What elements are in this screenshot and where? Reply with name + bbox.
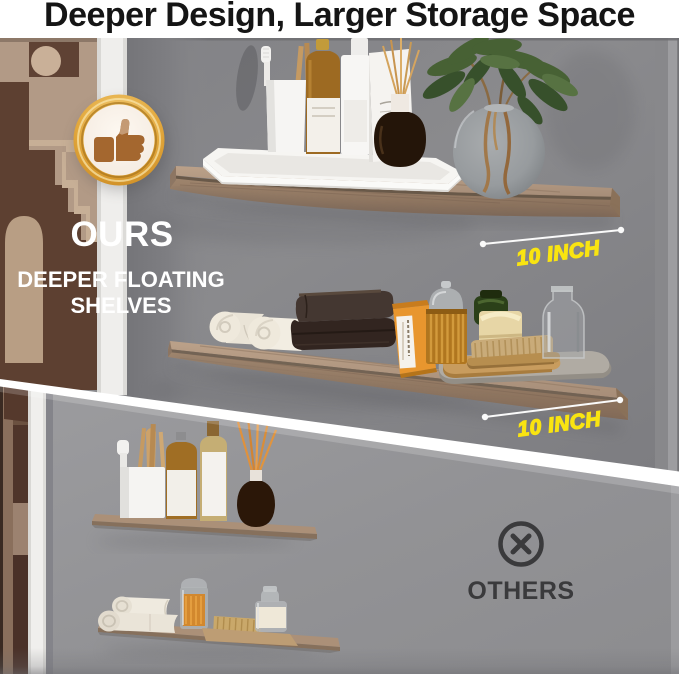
svg-text:SHELVES: SHELVES bbox=[70, 293, 171, 318]
svg-text:OTHERS: OTHERS bbox=[467, 577, 574, 605]
svg-text:OURS: OURS bbox=[70, 215, 173, 254]
svg-text:DEEPER FLOATING: DEEPER FLOATING bbox=[17, 267, 224, 292]
